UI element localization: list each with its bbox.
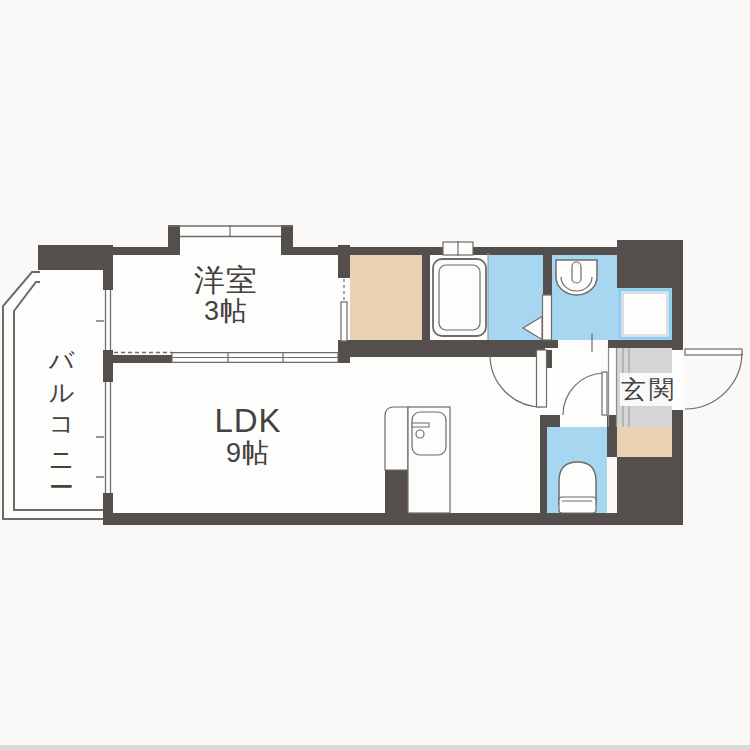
wall-segment <box>103 355 172 363</box>
wall-segment <box>168 225 180 255</box>
laundry-nook-floor <box>617 288 672 340</box>
room-ldk-floor <box>113 363 545 513</box>
bathroom-floor <box>430 255 488 340</box>
page-bottom-edge <box>0 745 750 750</box>
kitchen-stub-wall-step <box>396 462 408 470</box>
toilet-room-floor <box>547 425 607 513</box>
wall-segment <box>338 340 545 357</box>
wall-segment <box>540 427 547 513</box>
toilet-door-opening <box>560 415 607 427</box>
wall-segment <box>293 247 443 255</box>
room-western-name: 洋室 <box>166 264 286 297</box>
wall-segment <box>545 247 617 255</box>
room-ldk-floor-strip <box>350 357 545 363</box>
closet-floor <box>350 255 422 340</box>
wall-segment <box>103 493 113 515</box>
bay-window-floor <box>180 227 281 255</box>
room-ldk-name: LDK <box>188 403 308 439</box>
wall-segment <box>545 350 552 368</box>
wall-segment <box>103 247 168 255</box>
closet-door-opening <box>338 278 350 342</box>
wall-segment <box>545 340 558 348</box>
wall-segment <box>281 225 293 255</box>
balcony-label: バルコニー <box>46 332 79 512</box>
wall-segment <box>473 247 545 255</box>
wall-segment <box>617 240 683 288</box>
ldk-door-opening <box>545 368 552 415</box>
wall-segment <box>608 340 683 348</box>
wall-segment <box>672 410 683 457</box>
wall-segment <box>540 415 560 427</box>
window-glazing <box>96 290 111 493</box>
kitchen-stub-wall <box>385 470 408 513</box>
bath-window <box>443 241 473 256</box>
bath-anteroom-floor <box>488 253 543 340</box>
wall-segment <box>617 457 683 513</box>
hallway-floor <box>552 348 608 415</box>
wall-segment <box>607 415 617 427</box>
wall-segment <box>543 253 552 295</box>
wall-segment <box>38 245 110 270</box>
wall-segment <box>103 513 683 525</box>
washroom-opening <box>558 340 608 348</box>
floor-plan: 洋室 3帖 LDK 9帖 バルコニー 玄関 <box>0 0 750 750</box>
shoe-storage-floor <box>617 427 672 457</box>
wall-segment <box>422 255 430 340</box>
wall-segment <box>607 427 617 457</box>
room-ldk-size: 9帖 <box>188 439 308 468</box>
room-western-size: 3帖 <box>166 297 286 326</box>
room-ldk-label: LDK 9帖 <box>188 403 308 468</box>
entrance-label: 玄関 <box>620 373 678 406</box>
room-western-label: 洋室 3帖 <box>166 264 286 327</box>
washroom-floor <box>552 255 617 340</box>
wall-segment <box>338 245 350 278</box>
entrance-door <box>685 349 742 409</box>
